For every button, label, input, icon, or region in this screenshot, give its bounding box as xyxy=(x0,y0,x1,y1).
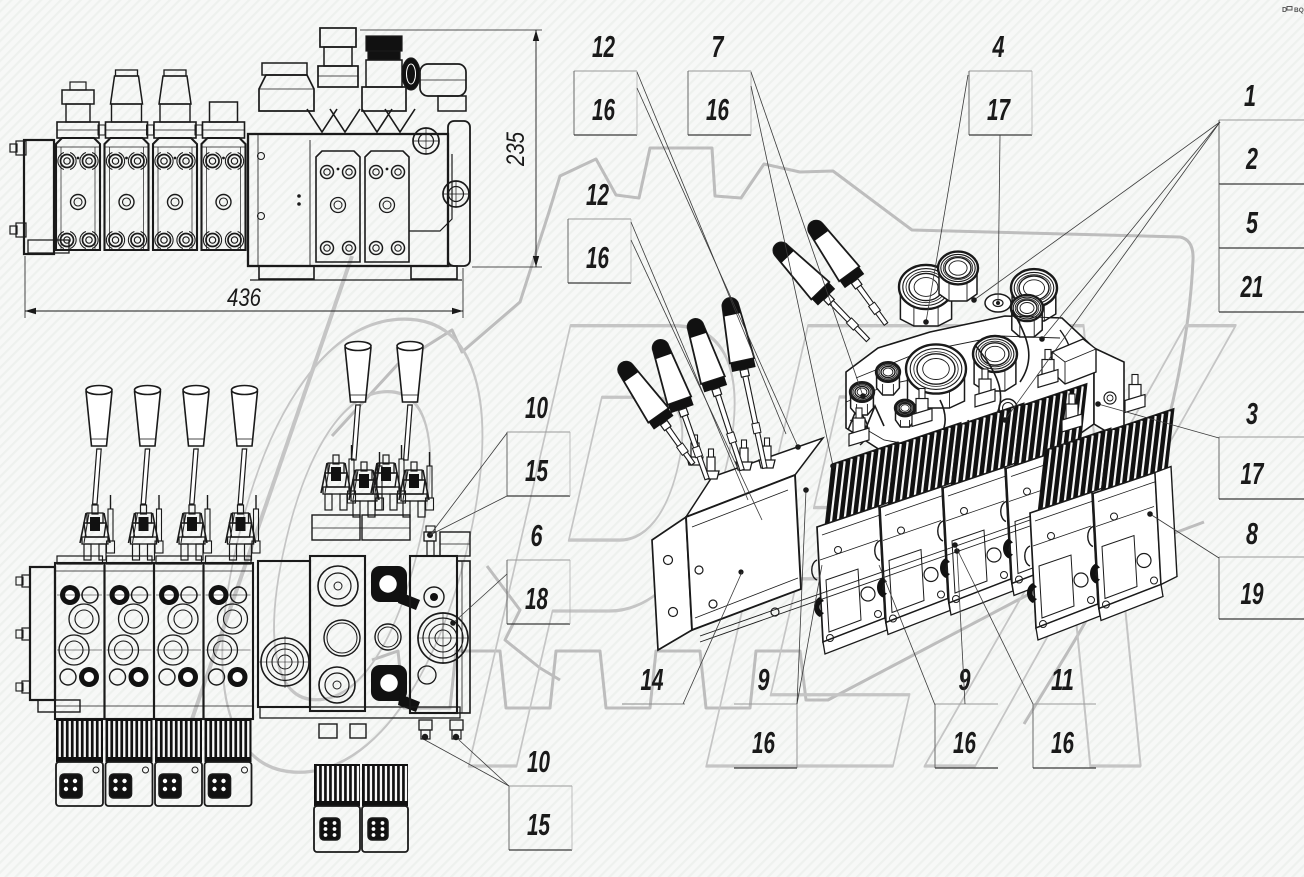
svg-text:5: 5 xyxy=(1246,205,1259,240)
svg-text:19: 19 xyxy=(1241,576,1265,611)
svg-text:16: 16 xyxy=(1051,725,1075,760)
svg-text:235: 235 xyxy=(502,132,530,167)
svg-text:4: 4 xyxy=(992,29,1005,64)
svg-text:12: 12 xyxy=(592,29,615,64)
svg-text:18: 18 xyxy=(525,581,549,616)
svg-text:3: 3 xyxy=(1246,396,1258,431)
svg-text:12: 12 xyxy=(586,177,609,212)
svg-text:6: 6 xyxy=(531,518,544,553)
svg-text:16: 16 xyxy=(953,725,977,760)
svg-text:14: 14 xyxy=(641,662,664,697)
svg-text:436: 436 xyxy=(227,284,261,312)
svg-text:17: 17 xyxy=(987,92,1011,127)
svg-text:21: 21 xyxy=(1240,269,1264,304)
svg-text:10: 10 xyxy=(527,744,550,779)
svg-text:16: 16 xyxy=(706,92,730,127)
svg-text:D: D xyxy=(1282,7,1287,14)
svg-text:16: 16 xyxy=(752,725,776,760)
svg-text:15: 15 xyxy=(525,453,549,488)
svg-text:BQB: BQB xyxy=(1294,7,1304,14)
svg-text:16: 16 xyxy=(592,92,616,127)
svg-text:16: 16 xyxy=(586,240,610,275)
svg-text:11: 11 xyxy=(1051,662,1074,697)
svg-text:8: 8 xyxy=(1246,516,1259,551)
svg-text:9: 9 xyxy=(758,662,771,697)
svg-text:7: 7 xyxy=(712,29,725,64)
svg-text:1: 1 xyxy=(1244,78,1256,113)
svg-text:10: 10 xyxy=(525,390,548,425)
svg-text:17: 17 xyxy=(1241,456,1265,491)
svg-text:15: 15 xyxy=(527,807,551,842)
svg-text:9: 9 xyxy=(959,662,972,697)
svg-text:2: 2 xyxy=(1245,141,1258,176)
